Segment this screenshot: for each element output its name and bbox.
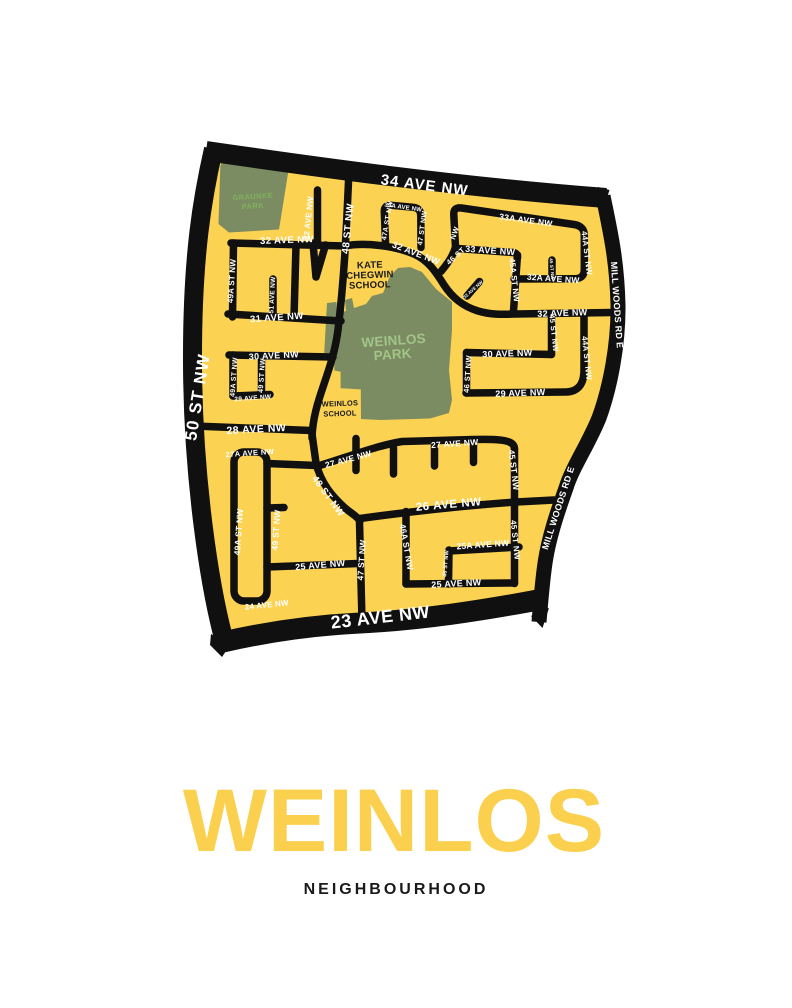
svg-text:NEIGHBOURHOOD: NEIGHBOURHOOD: [304, 881, 489, 898]
svg-text:PARK: PARK: [373, 346, 412, 364]
svg-text:WEINLOS: WEINLOS: [183, 770, 605, 870]
svg-text:SCHOOL: SCHOOL: [323, 408, 357, 418]
svg-text:29 AVE NW: 29 AVE NW: [495, 387, 546, 399]
svg-text:32 AVE NW: 32 AVE NW: [260, 234, 314, 247]
svg-text:PARK: PARK: [241, 201, 264, 212]
svg-text:SCHOOL: SCHOOL: [349, 279, 391, 291]
svg-text:30 AVE NW: 30 AVE NW: [482, 348, 533, 360]
svg-text:WEINLOS: WEINLOS: [322, 398, 359, 408]
svg-text:32 AVE NW: 32 AVE NW: [537, 307, 588, 319]
